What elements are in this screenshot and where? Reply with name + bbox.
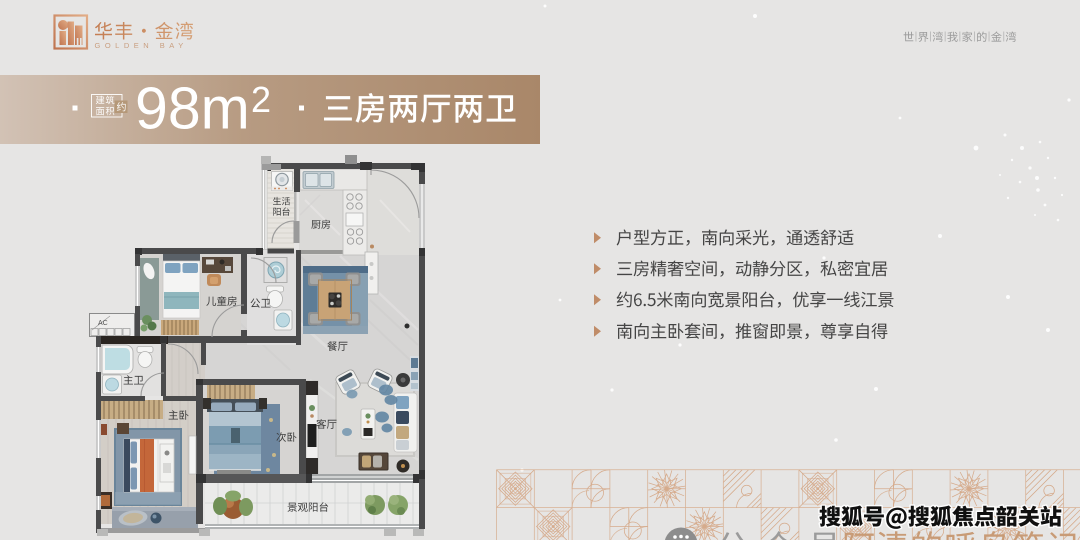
- svg-text:2: 2: [251, 79, 271, 120]
- svg-text:GOLDEN BAY: GOLDEN BAY: [95, 41, 188, 50]
- svg-text:98m: 98m: [135, 76, 250, 142]
- svg-text:AC: AC: [98, 320, 108, 327]
